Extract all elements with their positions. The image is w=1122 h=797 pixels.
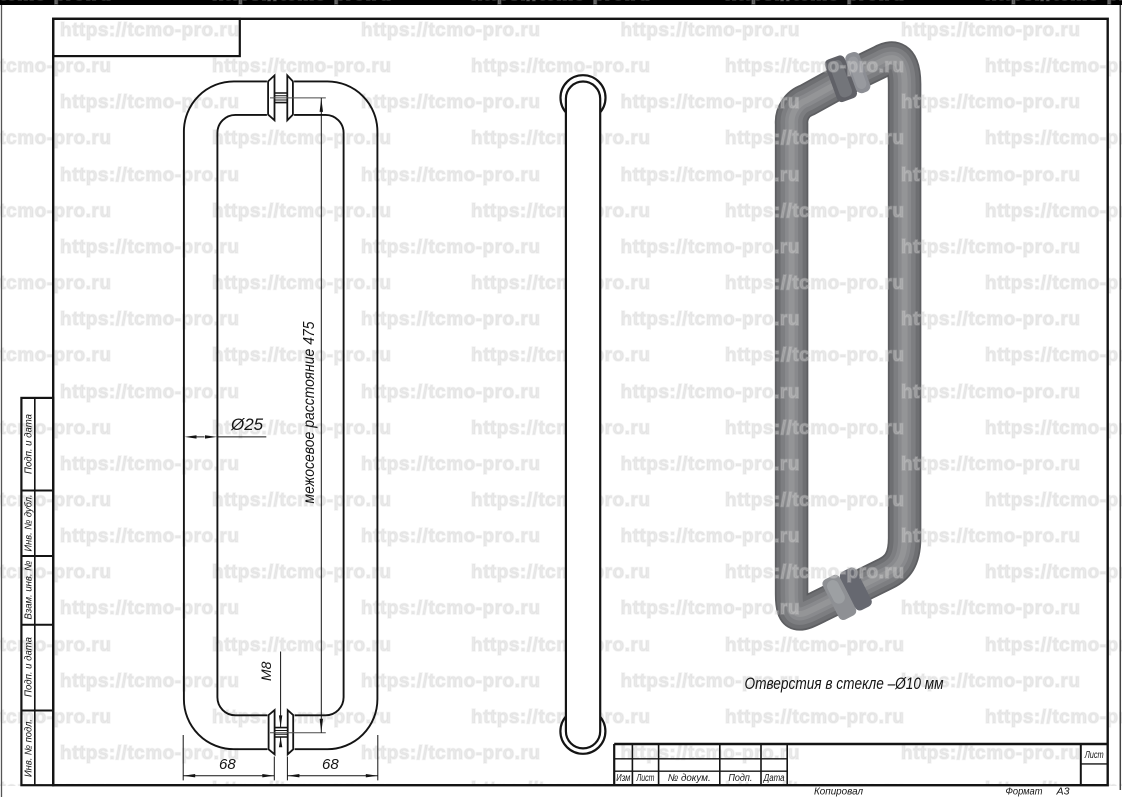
svg-text:Отверстия в стекле –Ø10 мм: Отверстия в стекле –Ø10 мм bbox=[745, 674, 944, 693]
svg-text:А3: А3 bbox=[1055, 787, 1070, 797]
svg-text:Взам. инв. №: Взам. инв. № bbox=[24, 560, 35, 619]
svg-text:Формат: Формат bbox=[1006, 787, 1043, 797]
svg-text:Инв. № подл.: Инв. № подл. bbox=[24, 719, 35, 777]
svg-text:Подп. и дата: Подп. и дата bbox=[24, 414, 35, 474]
svg-text:68: 68 bbox=[322, 756, 339, 773]
svg-text:Подп.: Подп. bbox=[728, 773, 752, 784]
svg-text:№ докум.: № докум. bbox=[668, 773, 711, 784]
svg-text:Копировал: Копировал bbox=[814, 787, 863, 797]
svg-text:Ø25: Ø25 bbox=[230, 415, 264, 434]
svg-text:Лист: Лист bbox=[636, 773, 655, 784]
svg-text:Лист: Лист bbox=[1084, 750, 1104, 761]
svg-text:Подп. и дата: Подп. и дата bbox=[24, 637, 35, 697]
svg-text:межосевое расстояние 475: межосевое расстояние 475 bbox=[301, 321, 318, 503]
svg-text:Инв. № дубл.: Инв. № дубл. bbox=[23, 495, 35, 552]
svg-text:Дата: Дата bbox=[763, 773, 785, 784]
svg-text:М8: М8 bbox=[258, 661, 274, 681]
svg-text:Изм: Изм bbox=[616, 773, 630, 784]
svg-text:68: 68 bbox=[219, 756, 236, 773]
